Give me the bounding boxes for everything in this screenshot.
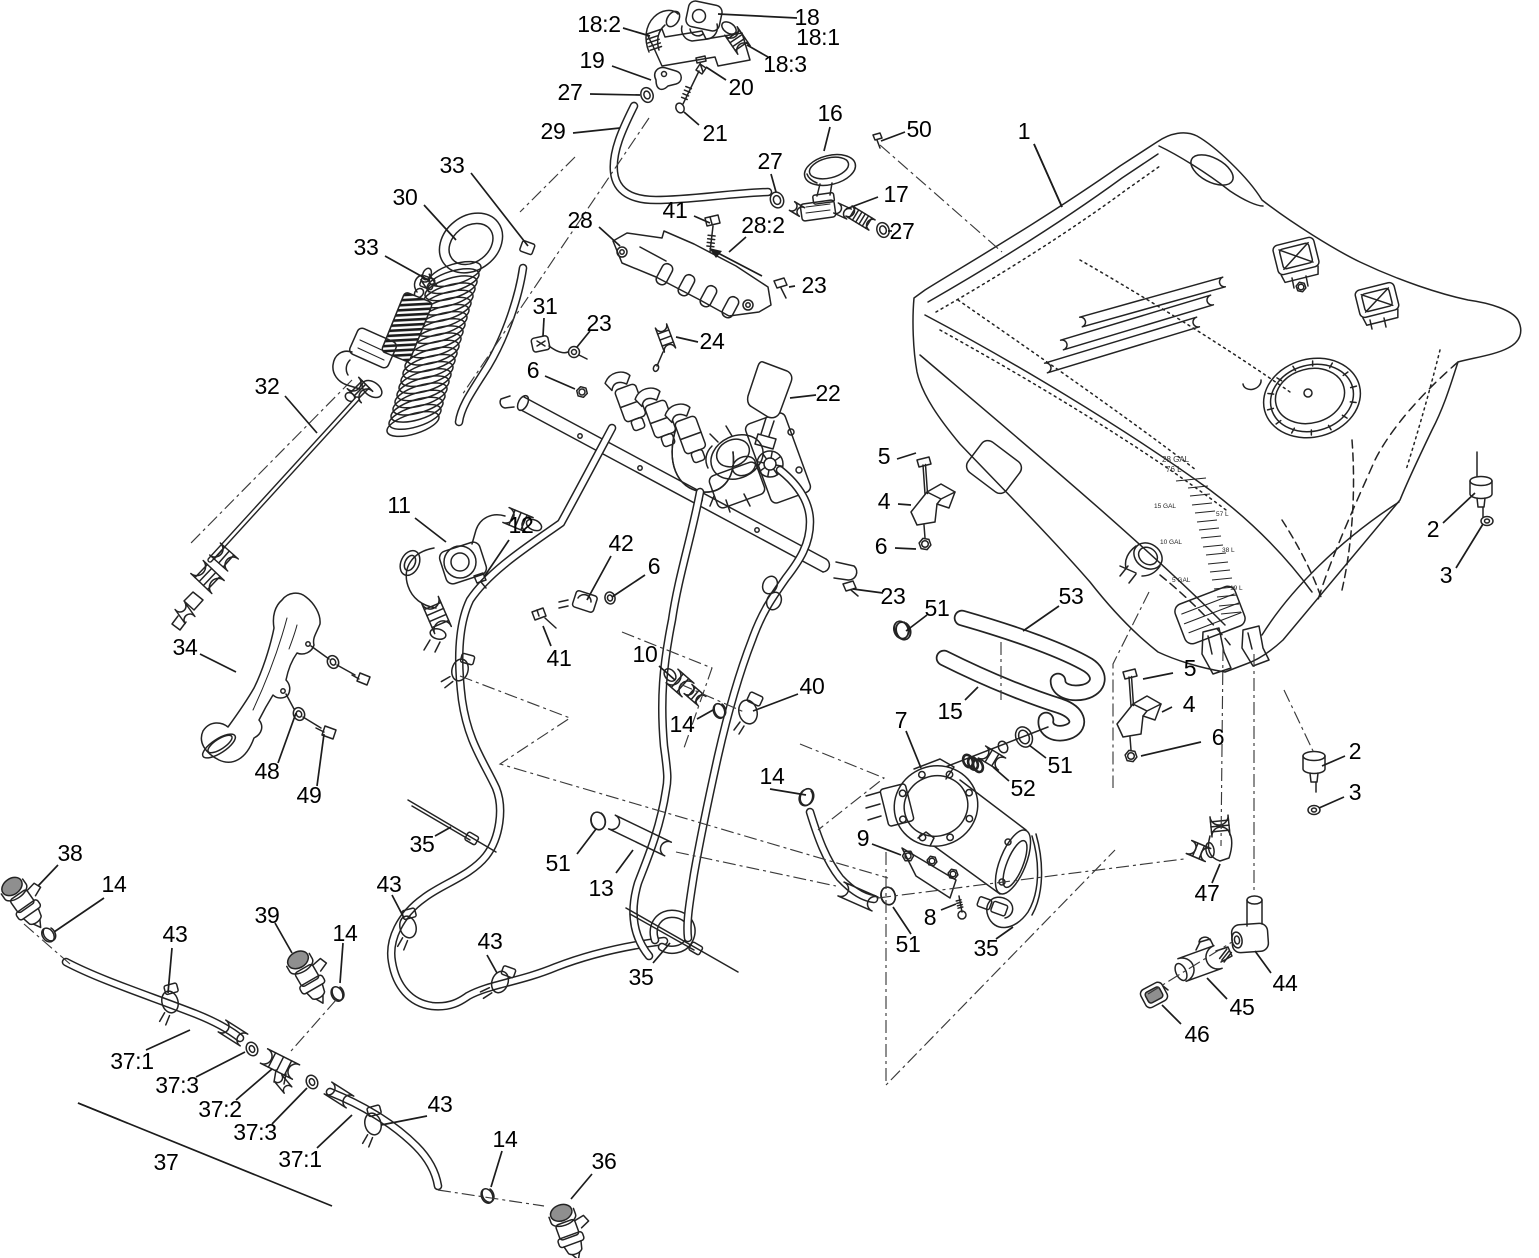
svg-text:76 L: 76 L bbox=[1166, 465, 1182, 474]
svg-text:10: 10 bbox=[633, 641, 658, 667]
svg-text:23: 23 bbox=[587, 310, 612, 336]
svg-text:20: 20 bbox=[729, 74, 754, 100]
svg-text:38: 38 bbox=[58, 840, 83, 866]
svg-text:3: 3 bbox=[1440, 562, 1453, 588]
svg-text:30: 30 bbox=[393, 184, 418, 210]
svg-text:12: 12 bbox=[509, 512, 534, 538]
svg-text:11: 11 bbox=[387, 492, 410, 518]
svg-text:3: 3 bbox=[1349, 779, 1362, 805]
svg-text:33: 33 bbox=[440, 152, 465, 178]
svg-text:36: 36 bbox=[592, 1148, 617, 1174]
svg-text:51: 51 bbox=[546, 850, 571, 876]
svg-text:37: 37 bbox=[154, 1149, 179, 1175]
svg-text:35: 35 bbox=[629, 964, 654, 990]
svg-text:43: 43 bbox=[163, 921, 188, 947]
svg-text:28:2: 28:2 bbox=[741, 212, 785, 238]
svg-text:18:3: 18:3 bbox=[763, 51, 807, 77]
svg-text:23: 23 bbox=[802, 272, 827, 298]
svg-text:14: 14 bbox=[333, 920, 358, 946]
svg-text:35: 35 bbox=[410, 831, 435, 857]
svg-text:4: 4 bbox=[878, 488, 891, 514]
svg-text:21: 21 bbox=[703, 120, 728, 146]
svg-text:8: 8 bbox=[924, 904, 937, 930]
svg-text:45: 45 bbox=[1230, 994, 1255, 1020]
svg-text:6: 6 bbox=[527, 357, 540, 383]
svg-text:37:3: 37:3 bbox=[233, 1119, 277, 1145]
svg-text:5: 5 bbox=[878, 443, 891, 469]
svg-text:18:1: 18:1 bbox=[796, 24, 840, 50]
svg-text:28: 28 bbox=[568, 207, 593, 233]
svg-text:28 GAL: 28 GAL bbox=[1162, 455, 1190, 464]
svg-text:4: 4 bbox=[1183, 691, 1196, 717]
svg-text:19 L: 19 L bbox=[1230, 585, 1243, 592]
svg-text:43: 43 bbox=[377, 871, 402, 897]
svg-text:50: 50 bbox=[907, 116, 932, 142]
svg-text:18:2: 18:2 bbox=[577, 11, 621, 37]
svg-text:42: 42 bbox=[609, 530, 634, 556]
svg-text:14: 14 bbox=[670, 711, 695, 737]
svg-text:5 GAL: 5 GAL bbox=[1172, 577, 1191, 584]
svg-text:15 GAL: 15 GAL bbox=[1154, 503, 1176, 510]
svg-text:27: 27 bbox=[890, 218, 915, 244]
svg-text:22: 22 bbox=[816, 380, 841, 406]
svg-text:1: 1 bbox=[1018, 118, 1031, 144]
svg-text:19: 19 bbox=[580, 47, 605, 73]
svg-text:49: 49 bbox=[297, 782, 322, 808]
svg-text:2: 2 bbox=[1427, 516, 1440, 542]
svg-text:31: 31 bbox=[533, 293, 558, 319]
svg-text:2: 2 bbox=[1349, 738, 1362, 764]
svg-text:43: 43 bbox=[428, 1091, 453, 1117]
svg-text:44: 44 bbox=[1273, 970, 1298, 996]
svg-text:53: 53 bbox=[1059, 583, 1084, 609]
svg-text:43: 43 bbox=[478, 928, 503, 954]
svg-text:5: 5 bbox=[1184, 655, 1197, 681]
svg-text:37:1: 37:1 bbox=[278, 1146, 322, 1172]
svg-text:57 L: 57 L bbox=[1216, 511, 1229, 518]
svg-text:27: 27 bbox=[558, 79, 583, 105]
svg-text:51: 51 bbox=[896, 931, 921, 957]
svg-text:24: 24 bbox=[700, 328, 725, 354]
svg-text:41: 41 bbox=[547, 645, 572, 671]
svg-text:14: 14 bbox=[760, 763, 785, 789]
svg-text:10 GAL: 10 GAL bbox=[1160, 539, 1182, 546]
svg-text:39: 39 bbox=[255, 902, 280, 928]
svg-text:29: 29 bbox=[541, 118, 566, 144]
svg-text:47: 47 bbox=[1195, 880, 1220, 906]
svg-text:6: 6 bbox=[648, 553, 661, 579]
svg-text:23: 23 bbox=[881, 583, 906, 609]
svg-text:48: 48 bbox=[255, 758, 280, 784]
svg-text:33: 33 bbox=[354, 234, 379, 260]
svg-text:14: 14 bbox=[493, 1126, 518, 1152]
svg-text:41: 41 bbox=[663, 197, 688, 223]
svg-text:52: 52 bbox=[1011, 775, 1036, 801]
svg-text:14: 14 bbox=[102, 871, 127, 897]
svg-text:40: 40 bbox=[800, 673, 825, 699]
svg-text:13: 13 bbox=[589, 875, 614, 901]
svg-text:51: 51 bbox=[1048, 752, 1073, 778]
svg-text:51: 51 bbox=[925, 595, 950, 621]
svg-text:9: 9 bbox=[857, 825, 870, 851]
svg-text:34: 34 bbox=[173, 634, 198, 660]
svg-text:17: 17 bbox=[884, 181, 909, 207]
svg-text:37:3: 37:3 bbox=[155, 1072, 199, 1098]
svg-text:27: 27 bbox=[758, 148, 783, 174]
svg-text:6: 6 bbox=[875, 533, 888, 559]
svg-text:38 L: 38 L bbox=[1222, 547, 1235, 554]
svg-text:35: 35 bbox=[974, 935, 999, 961]
svg-text:16: 16 bbox=[818, 100, 843, 126]
svg-text:37:1: 37:1 bbox=[110, 1048, 154, 1074]
svg-text:15: 15 bbox=[938, 698, 963, 724]
svg-text:7: 7 bbox=[895, 707, 908, 733]
svg-text:46: 46 bbox=[1185, 1021, 1210, 1047]
svg-text:6: 6 bbox=[1212, 724, 1225, 750]
svg-text:32: 32 bbox=[255, 373, 280, 399]
